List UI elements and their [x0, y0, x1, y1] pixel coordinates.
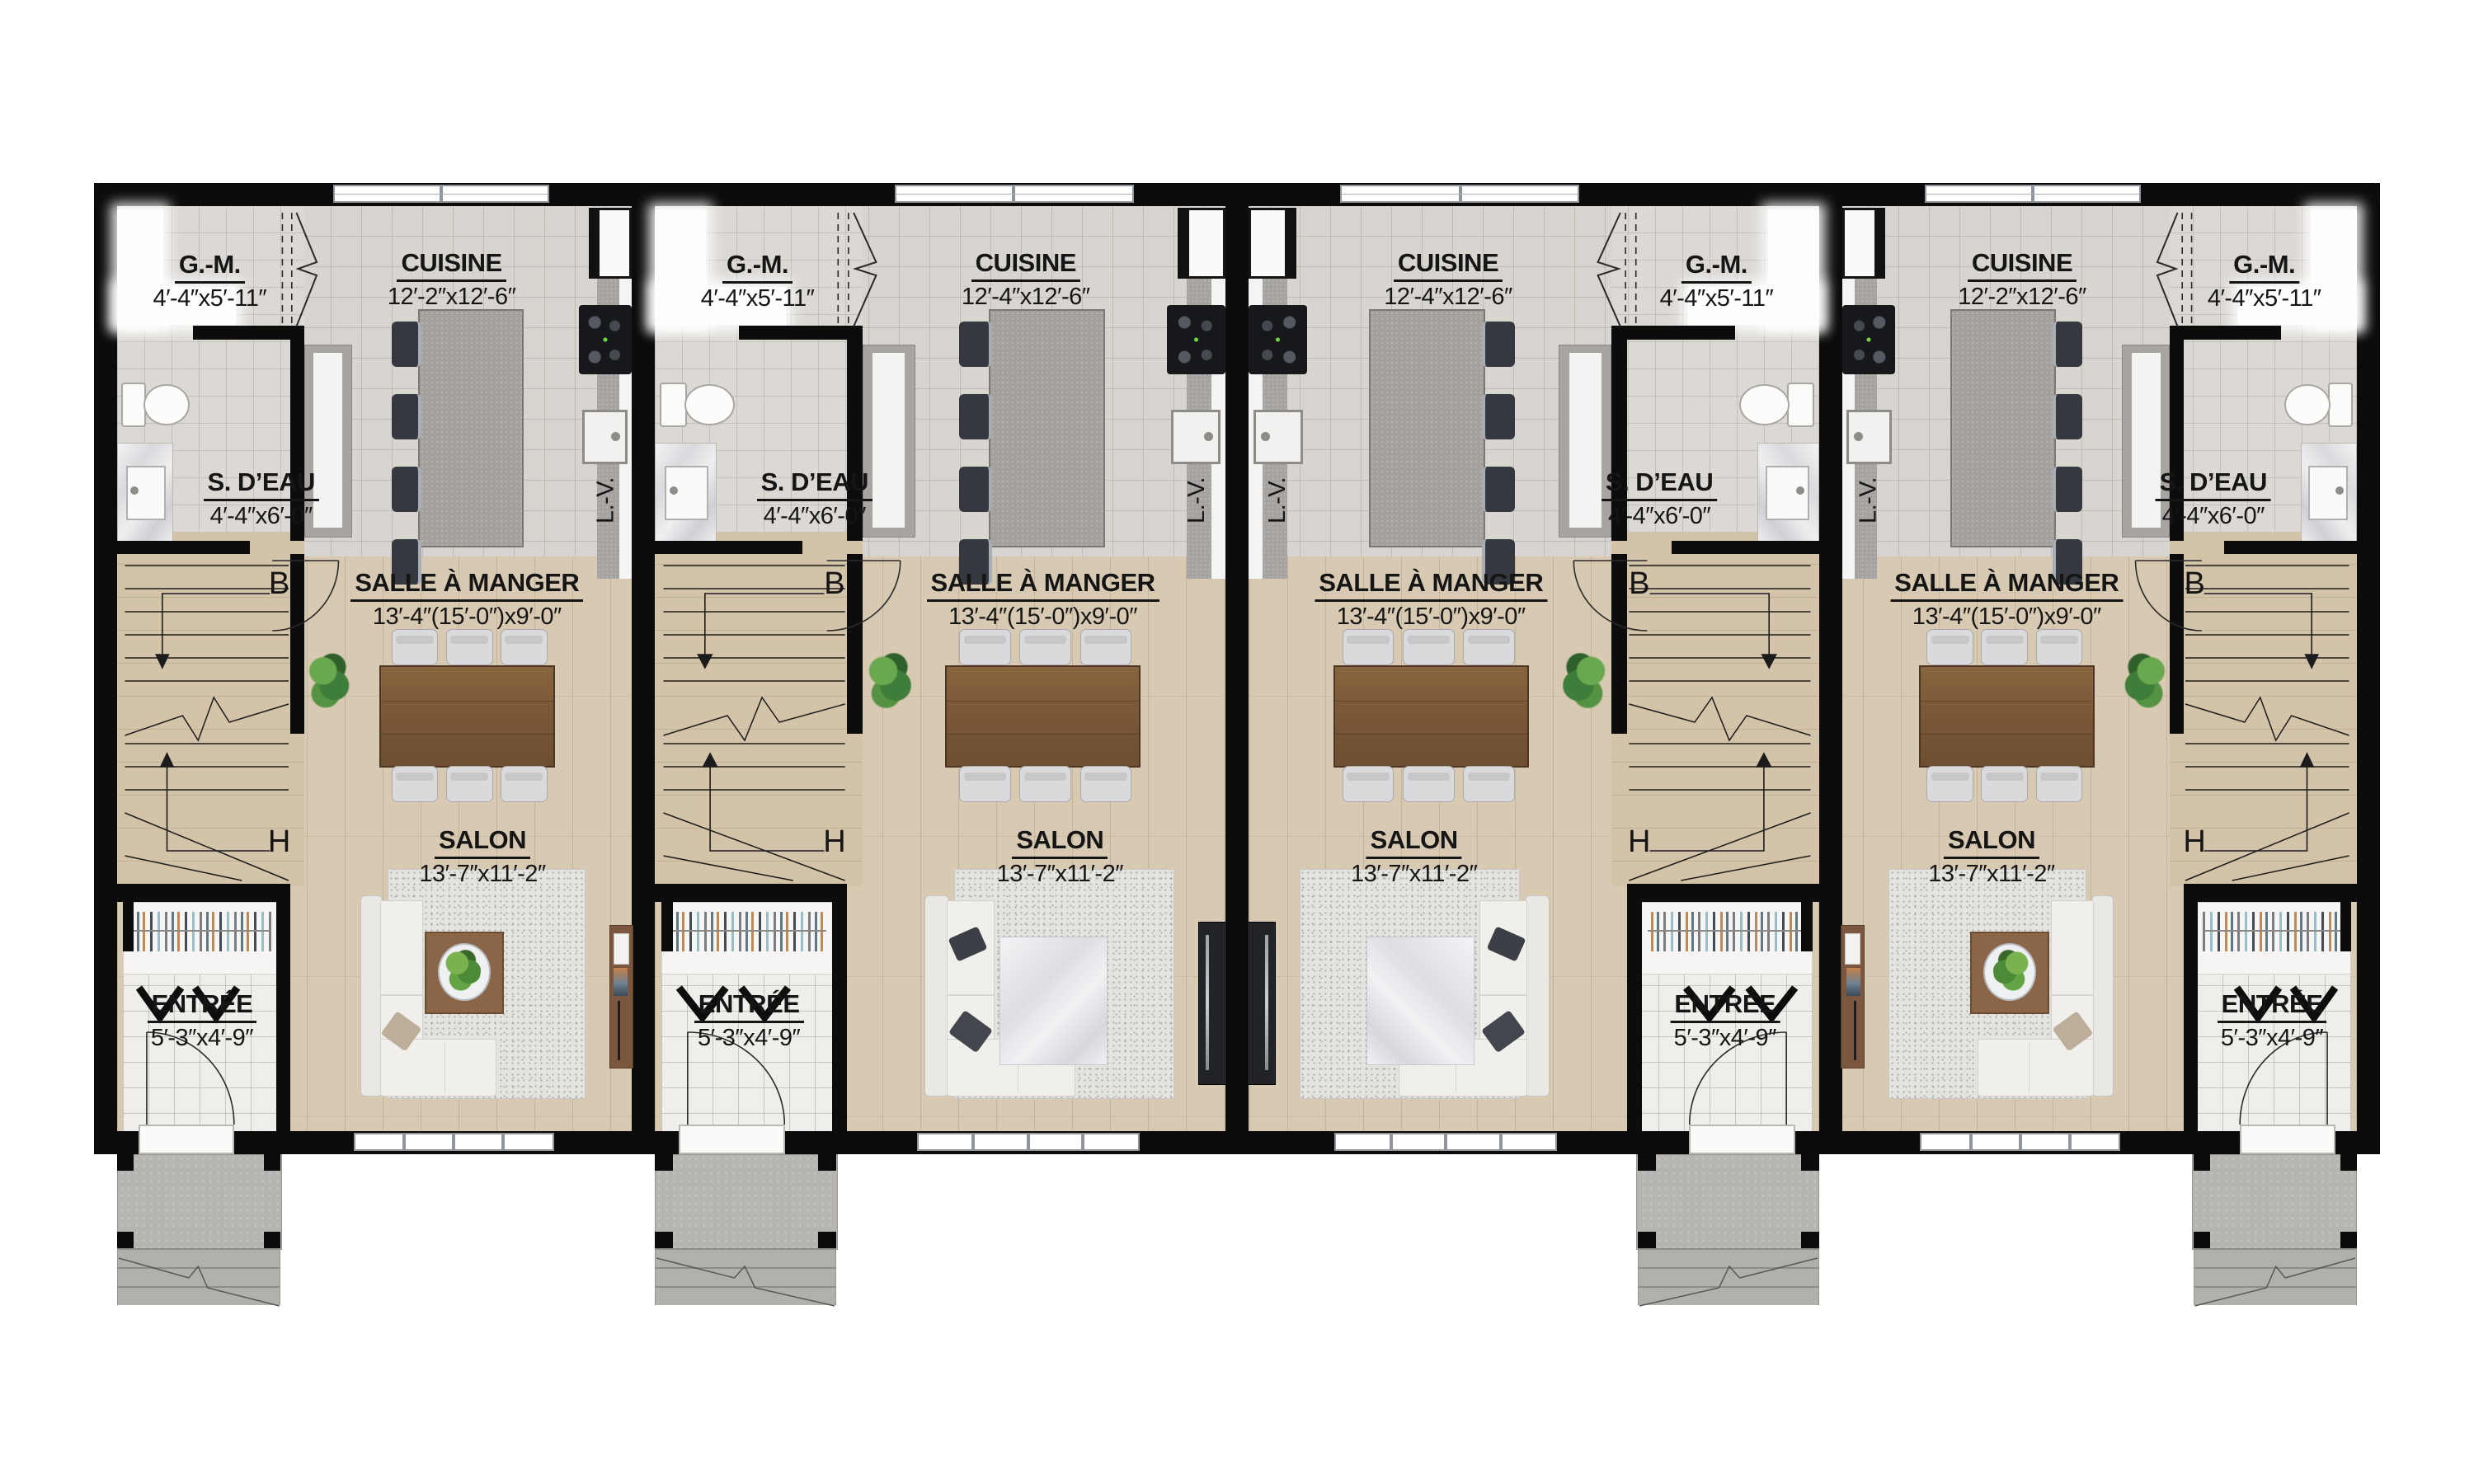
- pantry-name: G.-M.: [1681, 251, 1752, 284]
- porch-break-line: [656, 1258, 734, 1278]
- kitchen-name: CUISINE: [397, 249, 506, 282]
- dishwasher-label: L.-V.: [1251, 469, 1304, 532]
- room-label-living: SALON 13′-7″x11′-2″: [940, 826, 1180, 887]
- stair-up-letter: H: [2177, 824, 2213, 860]
- kitchen-window: [895, 185, 1135, 203]
- window-rail: [1926, 194, 2139, 195]
- porch-break-line: [2194, 1266, 2285, 1306]
- kitchen-dimensions: 12′-2″x12′-6″: [1893, 284, 2151, 310]
- room-label-living: SALON 13′-7″x11′-2″: [374, 826, 590, 887]
- room-label-pantry: G.-M. 4′-4″x5′-11″: [1614, 251, 1819, 312]
- floor-plan-canvas: G.-M. 4′-4″x5′-11″ CUISINE 12′-2″x12′-6″…: [0, 0, 2474, 1484]
- living-name: SALON: [1366, 826, 1462, 859]
- room-label-entry: ENTRÉE 5′-3″x4′-9″: [1631, 990, 1819, 1051]
- porch-break-line: [1639, 1266, 1740, 1306]
- entry-name: ENTRÉE: [1670, 990, 1780, 1023]
- dining-name: SALLE À MANGER: [927, 569, 1159, 602]
- room-label-pantry: G.-M. 4′-4″x5′-11″: [655, 251, 860, 312]
- powder-name: S. D’EAU: [2155, 468, 2270, 501]
- pantry-name: G.-M.: [175, 251, 245, 284]
- pantry-dimensions: 4′-4″x5′-11″: [655, 285, 860, 312]
- powder-name: S. D’EAU: [1602, 468, 1717, 501]
- plan-line-art: [117, 206, 632, 1377]
- powder-dimensions: 4′-4″x6′-0″: [127, 503, 394, 529]
- kitchen-window: [1340, 185, 1580, 203]
- unit-3: G.-M. 4′-4″x5′-11″ CUISINE 12′-4″x12′-6″…: [1249, 206, 1819, 1131]
- entry-dimensions: 5′-3″x4′-9″: [655, 1025, 843, 1051]
- party-wall-2-3: [1225, 183, 1249, 1154]
- living-name: SALON: [1012, 826, 1108, 859]
- dining-name: SALLE À MANGER: [350, 569, 583, 602]
- stair-up-letter: H: [1620, 824, 1659, 860]
- dishwasher-label: L.-V.: [579, 472, 632, 529]
- unit-4: G.-M. 4′-4″x5′-11″ CUISINE 12′-2″x12′-6″…: [1842, 206, 2357, 1131]
- room-label-pantry: G.-M. 4′-4″x5′-11″: [117, 251, 303, 312]
- room-label-entry: ENTRÉE 5′-3″x4′-9″: [117, 990, 287, 1051]
- living-dimensions: 13′-7″x11′-2″: [1294, 861, 1534, 887]
- kitchen-name: CUISINE: [1968, 249, 2077, 282]
- room-label-powder: S. D’EAU 4′-4″x6′-0″: [2079, 468, 2346, 529]
- kitchen-name: CUISINE: [971, 249, 1080, 282]
- room-label-dining: SALLE À MANGER 13′-4″(15′-0″)x9′-0″: [883, 569, 1203, 630]
- exterior-wall-left: [94, 183, 117, 1154]
- dining-dimensions: 13′-4″(15′-0″)x9′-0″: [1272, 603, 1592, 630]
- stair-direction-arrows: [2204, 594, 2318, 851]
- room-label-entry: ENTRÉE 5′-3″x4′-9″: [655, 990, 843, 1051]
- plan-line-art: [1249, 206, 1819, 1377]
- dishwasher-label: L.-V.: [1842, 472, 1895, 529]
- entry-name: ENTRÉE: [694, 990, 804, 1023]
- room-label-kitchen: CUISINE 12′-4″x12′-6″: [1305, 249, 1591, 310]
- stair-down-letter: B: [1620, 566, 1659, 602]
- porch-break-line: [189, 1266, 280, 1306]
- porch-break-line: [119, 1258, 189, 1278]
- entry-name: ENTRÉE: [2218, 990, 2327, 1023]
- pantry-dimensions: 4′-4″x5′-11″: [117, 285, 303, 312]
- porch-break-line: [1740, 1258, 1818, 1278]
- kitchen-dimensions: 12′-4″x12′-6″: [883, 284, 1169, 310]
- stair-direction-arrows: [156, 594, 270, 851]
- powder-dimensions: 4′-4″x6′-0″: [666, 503, 963, 529]
- living-dimensions: 13′-7″x11′-2″: [1884, 861, 2100, 887]
- porch-break-line: [734, 1266, 835, 1306]
- living-name: SALON: [1944, 826, 2039, 859]
- window-rail: [896, 194, 1133, 195]
- stair-up-letter: H: [261, 824, 298, 860]
- room-label-pantry: G.-M. 4′-4″x5′-11″: [2171, 251, 2357, 312]
- living-dimensions: 13′-7″x11′-2″: [374, 861, 590, 887]
- room-label-powder: S. D’EAU 4′-4″x6′-0″: [1511, 468, 1808, 529]
- living-name: SALON: [435, 826, 530, 859]
- room-label-dining: SALLE À MANGER 13′-4″(15′-0″)x9′-0″: [1863, 569, 2151, 630]
- dining-name: SALLE À MANGER: [1315, 569, 1547, 602]
- party-wall-1-2: [632, 183, 655, 1154]
- pantry-dimensions: 4′-4″x5′-11″: [2171, 285, 2357, 312]
- powder-name: S. D’EAU: [757, 468, 872, 501]
- unit-2: G.-M. 4′-4″x5′-11″ CUISINE 12′-4″x12′-6″…: [655, 206, 1225, 1131]
- entry-dimensions: 5′-3″x4′-9″: [117, 1025, 287, 1051]
- kitchen-name: CUISINE: [1394, 249, 1503, 282]
- room-label-dining: SALLE À MANGER 13′-4″(15′-0″)x9′-0″: [1272, 569, 1592, 630]
- pantry-dimensions: 4′-4″x5′-11″: [1614, 285, 1819, 312]
- room-label-entry: ENTRÉE 5′-3″x4′-9″: [2187, 990, 2357, 1051]
- kitchen-window: [1925, 185, 2141, 203]
- pantry-name: G.-M.: [722, 251, 793, 284]
- room-label-living: SALON 13′-7″x11′-2″: [1884, 826, 2100, 887]
- dining-name: SALLE À MANGER: [1891, 569, 2124, 602]
- room-label-kitchen: CUISINE 12′-2″x12′-6″: [1893, 249, 2151, 310]
- entry-dimensions: 5′-3″x4′-9″: [2187, 1025, 2357, 1051]
- entry-dimensions: 5′-3″x4′-9″: [1631, 1025, 1819, 1051]
- window-rail: [1342, 194, 1578, 195]
- room-label-powder: S. D’EAU 4′-4″x6′-0″: [127, 468, 394, 529]
- dining-dimensions: 13′-4″(15′-0″)x9′-0″: [1863, 603, 2151, 630]
- room-label-powder: S. D’EAU 4′-4″x6′-0″: [666, 468, 963, 529]
- exterior-wall-right: [2357, 183, 2380, 1154]
- room-label-dining: SALLE À MANGER 13′-4″(15′-0″)x9′-0″: [323, 569, 611, 630]
- entry-name: ENTRÉE: [148, 990, 257, 1023]
- party-wall-3-4: [1819, 183, 1842, 1154]
- stair-direction-arrows: [1649, 594, 1776, 851]
- kitchen-window: [333, 185, 549, 203]
- powder-name: S. D’EAU: [204, 468, 319, 501]
- plan-line-art: [655, 206, 1225, 1377]
- porch-break-line: [2285, 1258, 2355, 1278]
- stair-down-letter: B: [2177, 566, 2213, 602]
- room-label-living: SALON 13′-7″x11′-2″: [1294, 826, 1534, 887]
- dining-dimensions: 13′-4″(15′-0″)x9′-0″: [883, 603, 1203, 630]
- pantry-name: G.-M.: [2229, 251, 2299, 284]
- powder-dimensions: 4′-4″x6′-0″: [1511, 503, 1808, 529]
- unit-1: G.-M. 4′-4″x5′-11″ CUISINE 12′-2″x12′-6″…: [117, 206, 632, 1131]
- powder-dimensions: 4′-4″x6′-0″: [2079, 503, 2346, 529]
- living-dimensions: 13′-7″x11′-2″: [940, 861, 1180, 887]
- room-label-kitchen: CUISINE 12′-2″x12′-6″: [323, 249, 581, 310]
- room-label-kitchen: CUISINE 12′-4″x12′-6″: [883, 249, 1169, 310]
- stair-down-letter: B: [815, 566, 854, 602]
- stair-down-letter: B: [261, 566, 298, 602]
- kitchen-dimensions: 12′-2″x12′-6″: [323, 284, 581, 310]
- stair-direction-arrows: [698, 594, 824, 851]
- plan-line-art: [1842, 206, 2357, 1377]
- kitchen-dimensions: 12′-4″x12′-6″: [1305, 284, 1591, 310]
- dining-dimensions: 13′-4″(15′-0″)x9′-0″: [323, 603, 611, 630]
- window-rail: [335, 194, 548, 195]
- stair-up-letter: H: [815, 824, 854, 860]
- dishwasher-label: L.-V.: [1170, 469, 1223, 532]
